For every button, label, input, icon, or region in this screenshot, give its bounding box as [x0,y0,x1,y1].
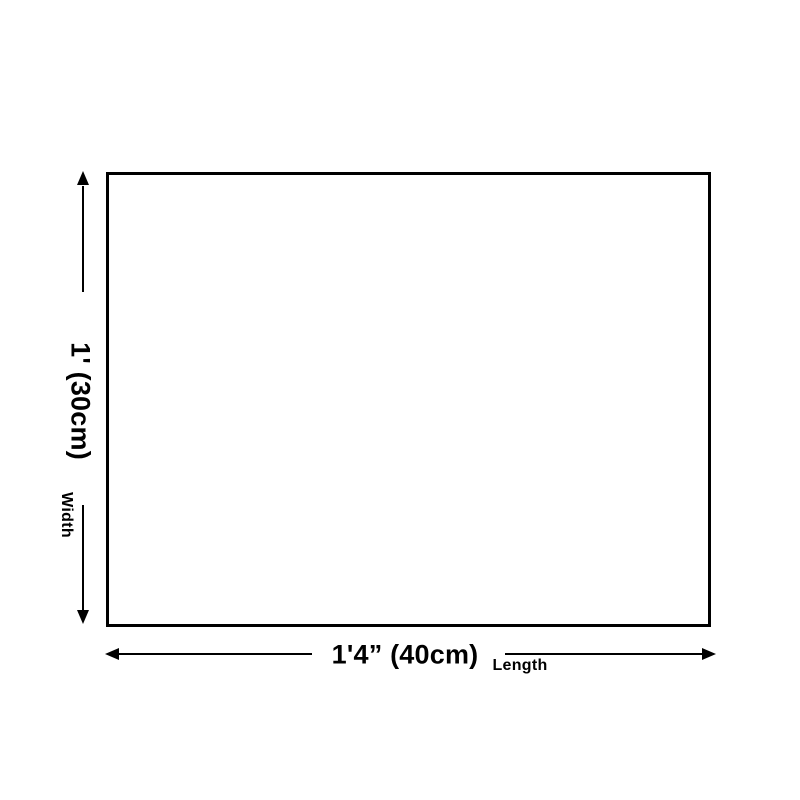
width-arrow-top-arrowhead-icon [77,171,89,185]
length-arrow-line-right [505,653,703,656]
width-axis-label: Width [57,492,75,538]
product-outline-rectangle [106,172,711,627]
width-dimension-value: 1' (30cm) [65,342,96,460]
length-arrow-right-arrowhead-icon [702,648,716,660]
dimension-diagram: 1' (30cm) Width 1'4” (40cm) Length [0,0,800,800]
length-axis-label: Length [492,657,547,675]
width-arrow-bottom-arrowhead-icon [77,610,89,624]
width-arrow-line-lower [82,505,85,612]
length-dimension-value: 1'4” (40cm) [332,640,479,671]
length-arrow-line-left [117,653,312,656]
width-arrow-line-upper [82,186,85,292]
